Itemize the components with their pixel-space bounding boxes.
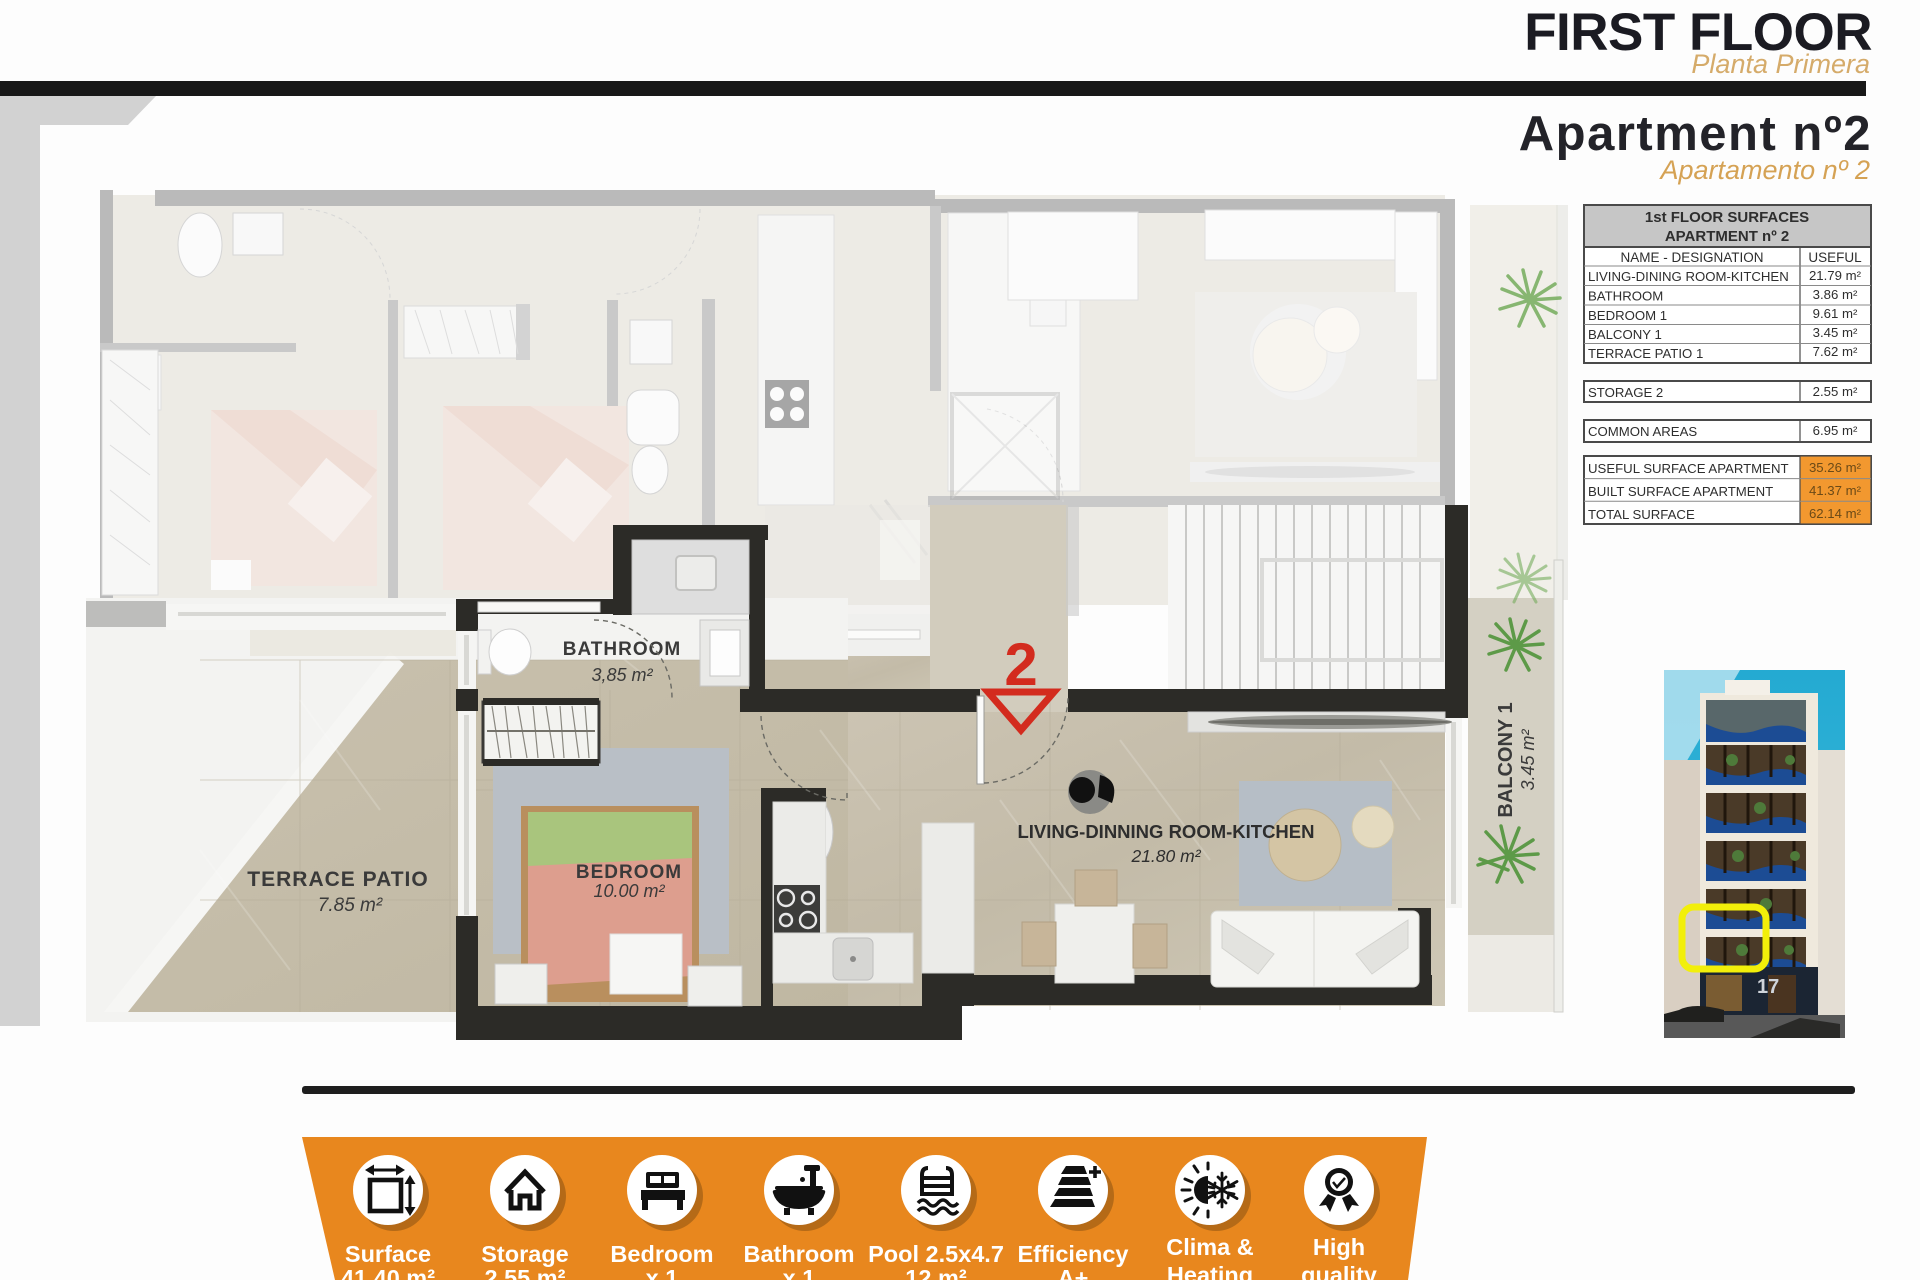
svg-text:STORAGE 2: STORAGE 2 xyxy=(1588,385,1663,400)
svg-text:x 1: x 1 xyxy=(783,1265,816,1280)
svg-text:Apartment nº2: Apartment nº2 xyxy=(1519,107,1872,161)
svg-text:17: 17 xyxy=(1757,976,1779,998)
svg-text:TERRACE PATIO: TERRACE PATIO xyxy=(247,868,428,891)
svg-text:TOTAL SURFACE: TOTAL SURFACE xyxy=(1588,507,1695,522)
svg-text:BEDROOM: BEDROOM xyxy=(576,862,682,883)
svg-text:COMMON AREAS: COMMON AREAS xyxy=(1588,424,1697,439)
svg-text:3.86 m²: 3.86 m² xyxy=(1813,287,1858,302)
svg-text:BATHROOM: BATHROOM xyxy=(563,639,681,660)
svg-text:High: High xyxy=(1313,1234,1365,1260)
svg-text:1st FLOOR SURFACES: 1st FLOOR SURFACES xyxy=(1645,209,1809,226)
svg-text:BATHROOM: BATHROOM xyxy=(1588,289,1663,304)
svg-text:A+: A+ xyxy=(1058,1265,1089,1280)
svg-text:NAME - DESIGNATION: NAME - DESIGNATION xyxy=(1620,250,1763,265)
svg-text:quality: quality xyxy=(1301,1262,1377,1280)
svg-text:BALCONY 1: BALCONY 1 xyxy=(1588,327,1662,342)
svg-text:APARTMENT nº 2: APARTMENT nº 2 xyxy=(1665,228,1789,245)
svg-text:Planta Primera: Planta Primera xyxy=(1691,49,1870,79)
svg-text:21.79 m²: 21.79 m² xyxy=(1809,268,1862,283)
svg-text:3.45 m²: 3.45 m² xyxy=(1813,325,1858,340)
svg-text:2.55 m²: 2.55 m² xyxy=(1813,384,1858,399)
svg-text:62.14 m²: 62.14 m² xyxy=(1809,506,1862,521)
svg-text:x 1: x 1 xyxy=(646,1265,679,1280)
svg-text:Pool 2.5x4.7: Pool 2.5x4.7 xyxy=(868,1241,1004,1267)
svg-text:LIVING-DINING ROOM-KITCHEN: LIVING-DINING ROOM-KITCHEN xyxy=(1588,269,1789,284)
svg-text:Bathroom: Bathroom xyxy=(744,1241,855,1267)
svg-text:Surface: Surface xyxy=(345,1241,431,1267)
svg-text:7.85 m²: 7.85 m² xyxy=(318,895,383,916)
svg-text:10.00 m²: 10.00 m² xyxy=(593,881,665,901)
svg-text:USEFUL: USEFUL xyxy=(1808,250,1862,265)
svg-text:2.55 m²: 2.55 m² xyxy=(485,1265,566,1280)
svg-text:Heating: Heating xyxy=(1167,1262,1253,1280)
svg-text:Storage: Storage xyxy=(481,1241,569,1267)
svg-text:2: 2 xyxy=(1004,631,1037,698)
svg-text:35.26 m²: 35.26 m² xyxy=(1809,460,1862,475)
svg-text:LIVING-DINNING ROOM-KITCHEN: LIVING-DINNING ROOM-KITCHEN xyxy=(1017,821,1314,842)
svg-text:USEFUL SURFACE APARTMENT: USEFUL SURFACE APARTMENT xyxy=(1588,461,1789,476)
svg-text:41.40 m²: 41.40 m² xyxy=(341,1265,435,1280)
svg-text:Efficiency: Efficiency xyxy=(1017,1241,1128,1267)
svg-text:TERRACE PATIO 1: TERRACE PATIO 1 xyxy=(1588,346,1703,361)
svg-text:3.45 m²: 3.45 m² xyxy=(1518,728,1538,790)
svg-text:BEDROOM 1: BEDROOM 1 xyxy=(1588,308,1667,323)
svg-text:21.80 m²: 21.80 m² xyxy=(1130,846,1201,866)
svg-text:12 m²: 12 m² xyxy=(905,1265,967,1280)
svg-text:BALCONY 1: BALCONY 1 xyxy=(1495,702,1517,817)
svg-text:3,85 m²: 3,85 m² xyxy=(591,665,653,685)
svg-text:Clima &: Clima & xyxy=(1166,1234,1254,1260)
svg-text:41.37 m²: 41.37 m² xyxy=(1809,483,1862,498)
svg-text:6.95 m²: 6.95 m² xyxy=(1813,423,1858,438)
svg-text:Apartamento nº 2: Apartamento nº 2 xyxy=(1659,155,1871,185)
svg-text:BUILT SURFACE APARTMENT: BUILT SURFACE APARTMENT xyxy=(1588,484,1773,499)
svg-text:Bedroom: Bedroom xyxy=(610,1241,713,1267)
svg-text:9.61 m²: 9.61 m² xyxy=(1813,306,1858,321)
svg-text:7.62 m²: 7.62 m² xyxy=(1813,344,1858,359)
